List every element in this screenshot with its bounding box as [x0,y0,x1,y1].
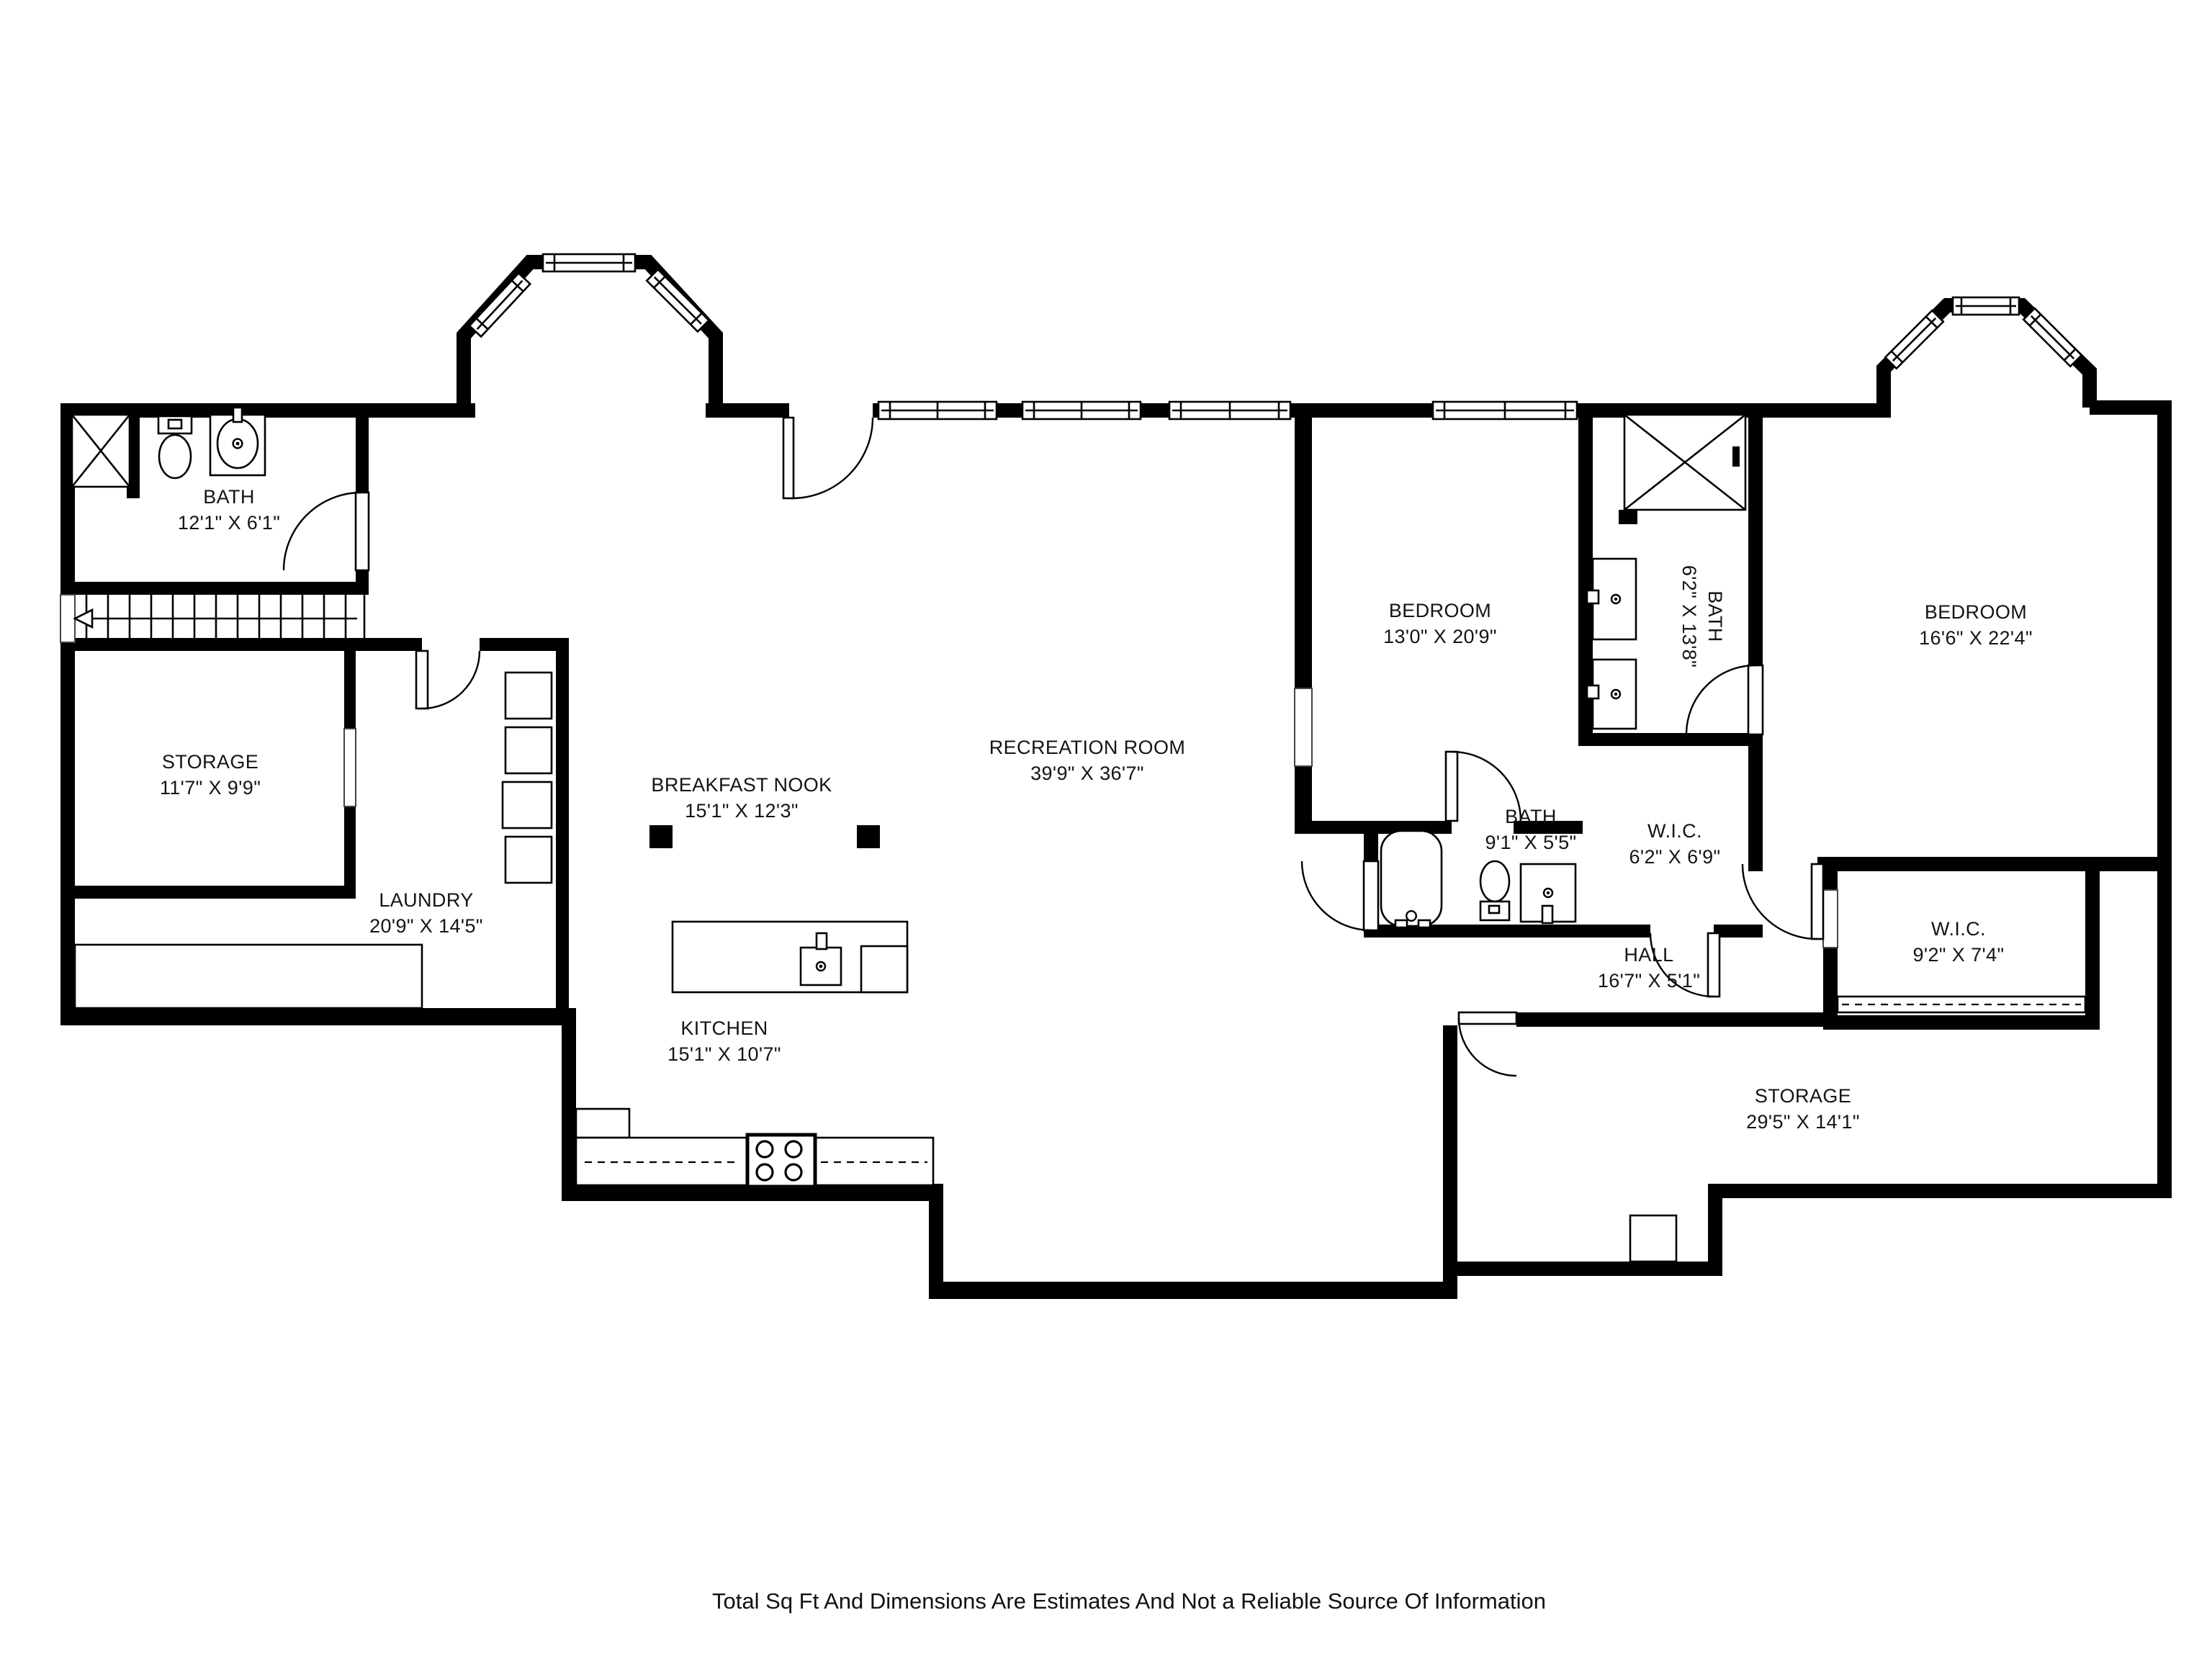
room-label-hall: HALL16'7" X 5'1" [1598,943,1700,993]
toilet-icon [1480,861,1509,920]
window [1169,402,1290,419]
closet-rod [1838,997,2085,1012]
door-swing [1459,1012,1516,1076]
door-swing [284,493,369,570]
support-post [649,825,673,848]
windows-top-wall [878,402,1577,419]
bay-window-right [1884,297,2090,418]
room-label-laundry: LAUNDRY20'9" X 14'5" [369,888,483,938]
storage-box [1630,1215,1676,1262]
room-label-wic-small: W.I.C.6'2" X 6'9" [1629,819,1721,869]
toilet-icon [158,416,192,478]
door-swing [783,418,873,498]
room-label-bedroom-1: BEDROOM13'0" X 20'9" [1383,598,1497,649]
vanity-icon [1587,660,1636,729]
door-swing [1686,665,1763,734]
stove-icon [747,1135,815,1187]
room-label-storage-left: STORAGE11'7" X 9'9" [160,750,261,800]
room-label-storage-bottom: STORAGE29'5" X 14'1" [1746,1084,1860,1134]
room-label-bath-vertical: BATH6'2" X 13'8" [1677,565,1727,667]
room-label-bath-top-left: BATH12'1" X 6'1" [178,485,280,535]
room-label-breakfast-nook: BREAKFAST NOOK15'1" X 12'3" [651,773,832,823]
door-swing [1302,861,1378,930]
room-label-kitchen: KITCHEN15'1" X 10'7" [667,1016,781,1066]
floor-plan: BATH12'1" X 6'1" STORAGE11'7" X 9'9" LAU… [0,0,2212,1659]
washer-dryer-stack [503,673,552,883]
window [878,402,997,419]
sink-icon [1521,864,1575,923]
window [1022,402,1141,419]
kitchen-island-sink [673,922,907,992]
support-post [857,825,880,848]
support-posts [649,825,880,848]
room-label-bath-2: BATH9'1" X 5'5" [1485,804,1577,855]
room-label-recreation-room: RECREATION ROOM39'9" X 36'7" [989,735,1186,786]
stairs [75,595,364,642]
laundry-counter [75,945,422,1008]
bay-window-left [464,254,716,418]
vanity-icon [1587,559,1636,639]
sink-icon [210,408,265,475]
exterior-walls [60,400,2172,1299]
room-label-wic-large: W.I.C.9'2" X 7'4" [1913,917,2005,967]
shower-icon [72,415,140,487]
room-label-bedroom-2: BEDROOM16'6" X 22'4" [1919,600,2033,650]
disclaimer-text: Total Sq Ft And Dimensions Are Estimates… [712,1590,1546,1616]
bath-top-left-fixtures [72,408,265,487]
stairs-up-arrow [75,610,92,627]
shower-icon [1624,415,1745,510]
floor-plan-drawing [0,0,2212,1659]
door-swing [416,651,480,709]
bathtub-icon [1381,831,1442,927]
window [1433,402,1577,419]
laundry-fixtures [75,673,552,1008]
